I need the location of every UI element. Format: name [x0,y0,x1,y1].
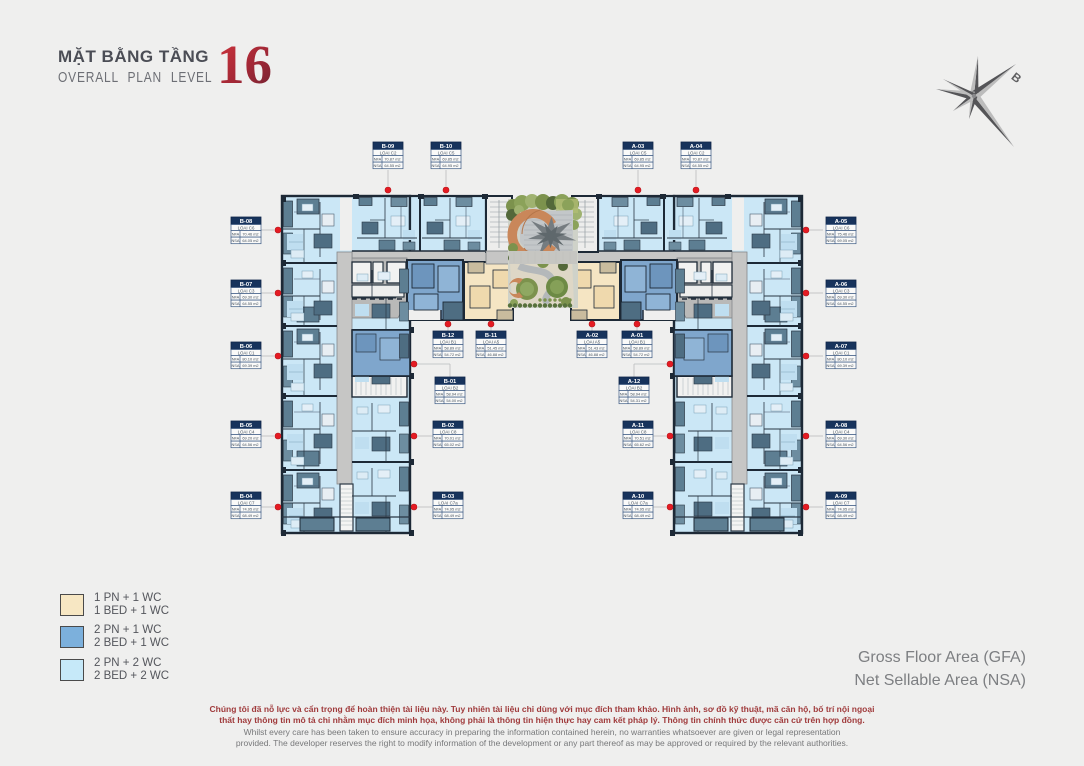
svg-text:NFA: NFA [682,157,690,162]
svg-text:B-12: B-12 [442,333,455,339]
svg-text:LOẠI C3: LOẠI C3 [833,288,850,293]
svg-text:NSA: NSA [623,352,631,357]
svg-text:NFA: NFA [827,436,835,441]
svg-text:LOẠI A5: LOẠI A5 [584,339,601,344]
svg-text:A-04: A-04 [690,144,703,150]
svg-text:LOẠI C2: LOẠI C2 [380,150,397,155]
svg-text:NSA: NSA [624,513,632,518]
svg-text:NFA: NFA [827,295,835,300]
svg-text:LOẠI C6: LOẠI C6 [833,225,850,230]
svg-text:64.55 m2: 64.55 m2 [837,301,853,306]
svg-text:NFA: NFA [232,295,240,300]
svg-text:68.49 m2: 68.49 m2 [634,513,650,518]
svg-text:NFA: NFA [620,392,628,397]
svg-text:LOẠI C2: LOẠI C2 [688,150,705,155]
svg-text:NFA: NFA [827,232,835,237]
svg-text:NSA: NSA [434,513,442,518]
svg-text:69.30 m2: 69.30 m2 [837,436,853,441]
svg-text:NSA: NSA [432,163,440,168]
svg-text:LOẠI C5: LOẠI C5 [438,150,455,155]
svg-text:NSA: NSA [827,301,835,306]
svg-text:LOẠI C8: LOẠI C8 [630,429,647,434]
svg-text:LOẠI C8: LOẠI C8 [440,429,457,434]
svg-text:54.72 m2: 54.72 m2 [444,352,460,357]
svg-text:51.45 m2: 51.45 m2 [487,346,503,351]
svg-text:LOẠI B1: LOẠI B1 [440,339,457,344]
svg-text:69.39 m2: 69.39 m2 [242,363,258,368]
svg-text:LOẠI C3: LOẠI C3 [238,288,255,293]
svg-text:NSA: NSA [232,513,240,518]
svg-text:74.95 m2: 74.95 m2 [837,507,853,512]
svg-text:NSA: NSA [477,352,485,357]
svg-text:54.31 m2: 54.31 m2 [630,398,646,403]
svg-text:NSA: NSA [232,363,240,368]
svg-text:46.88 m2: 46.88 m2 [487,352,503,357]
svg-text:NFA: NFA [434,346,442,351]
svg-text:64.56 m2: 64.56 m2 [242,442,258,447]
svg-text:NFA: NFA [624,507,632,512]
svg-text:A-07: A-07 [835,344,848,350]
svg-text:69.85 m2: 69.85 m2 [442,157,458,162]
svg-text:B-03: B-03 [442,494,455,500]
svg-text:A-05: A-05 [835,219,848,225]
svg-text:LOẠI C4: LOẠI C4 [238,429,255,434]
svg-text:NFA: NFA [436,392,444,397]
svg-text:B-11: B-11 [485,333,498,339]
svg-text:70.87 m2: 70.87 m2 [692,157,708,162]
svg-text:NSA: NSA [232,238,240,243]
svg-text:69.30 m2: 69.30 m2 [837,295,853,300]
svg-text:68.49 m2: 68.49 m2 [242,513,258,518]
svg-text:B-07: B-07 [240,282,253,288]
svg-text:NFA: NFA [434,436,442,441]
svg-text:A-02: A-02 [586,333,599,339]
svg-text:B-08: B-08 [240,219,253,225]
svg-text:NFA: NFA [232,232,240,237]
svg-text:58.89 m2: 58.89 m2 [444,346,460,351]
svg-text:NSA: NSA [682,163,690,168]
svg-text:NSA: NSA [827,442,835,447]
svg-text:LOẠI C7: LOẠI C7 [238,500,255,505]
svg-text:NFA: NFA [374,157,382,162]
svg-text:70.51 m2: 70.51 m2 [634,436,650,441]
svg-text:LOẠI C5: LOẠI C5 [630,150,647,155]
svg-text:LOẠI A5: LOẠI A5 [483,339,500,344]
svg-text:A-11: A-11 [632,423,645,429]
svg-text:A-12: A-12 [628,379,641,385]
svg-text:69.30 m2: 69.30 m2 [242,295,258,300]
svg-text:58.89 m2: 58.89 m2 [633,346,649,351]
svg-text:54.72 m2: 54.72 m2 [633,352,649,357]
svg-text:NFA: NFA [232,357,240,362]
svg-text:NFA: NFA [578,346,586,351]
svg-text:64.95 m2: 64.95 m2 [442,163,458,168]
svg-text:58.94 m2: 58.94 m2 [630,392,646,397]
svg-text:A-08: A-08 [835,423,848,429]
svg-text:LOẠI B2: LOẠI B2 [626,385,643,390]
svg-text:B-06: B-06 [240,344,253,350]
svg-text:LOẠI C7a: LOẠI C7a [438,500,458,505]
svg-text:NFA: NFA [477,346,485,351]
svg-text:NSA: NSA [827,363,835,368]
svg-text:51.43 m2: 51.43 m2 [588,346,604,351]
svg-text:B-05: B-05 [240,423,253,429]
svg-text:NSA: NSA [232,442,240,447]
svg-text:NFA: NFA [232,507,240,512]
svg-text:NFA: NFA [232,436,240,441]
svg-text:LOẠI B2: LOẠI B2 [442,385,459,390]
svg-text:NSA: NSA [434,352,442,357]
svg-text:64.55 m2: 64.55 m2 [384,163,400,168]
svg-text:NSA: NSA [434,442,442,447]
svg-text:NSA: NSA [374,163,382,168]
svg-text:80.10 m2: 80.10 m2 [837,357,853,362]
svg-text:LOẠI C7: LOẠI C7 [833,500,850,505]
svg-text:LOẠI C6: LOẠI C6 [238,225,255,230]
svg-text:A-03: A-03 [632,144,645,150]
svg-text:NSA: NSA [624,442,632,447]
svg-text:74.95 m2: 74.95 m2 [634,507,650,512]
svg-text:68.49 m2: 68.49 m2 [444,513,460,518]
svg-text:NFA: NFA [827,507,835,512]
svg-text:A-10: A-10 [632,494,645,500]
svg-text:NSA: NSA [827,238,835,243]
svg-text:LOẠI C7a: LOẠI C7a [628,500,648,505]
svg-text:LOẠI C4: LOẠI C4 [833,429,850,434]
svg-text:64.95 m2: 64.95 m2 [634,163,650,168]
svg-text:A-01: A-01 [631,333,644,339]
svg-text:69.05 m2: 69.05 m2 [837,238,853,243]
svg-text:NSA: NSA [436,398,444,403]
svg-text:74.95 m2: 74.95 m2 [444,507,460,512]
svg-text:80.10 m2: 80.10 m2 [242,357,258,362]
svg-text:NSA: NSA [232,301,240,306]
svg-text:70.46 m2: 70.46 m2 [242,232,258,237]
svg-text:NFA: NFA [434,507,442,512]
svg-text:65.62 m2: 65.62 m2 [634,442,650,447]
svg-text:LOẠI C1: LOẠI C1 [833,350,850,355]
svg-text:LOẠI B1: LOẠI B1 [629,339,646,344]
svg-text:75.46 m2: 75.46 m2 [837,232,853,237]
svg-text:NFA: NFA [623,346,631,351]
svg-text:NFA: NFA [827,357,835,362]
svg-text:69.39 m2: 69.39 m2 [837,363,853,368]
svg-text:74.95 m2: 74.95 m2 [242,507,258,512]
svg-text:64.56 m2: 64.56 m2 [837,442,853,447]
svg-text:64.55 m2: 64.55 m2 [692,163,708,168]
svg-text:46.88 m2: 46.88 m2 [588,352,604,357]
svg-text:70.87 m2: 70.87 m2 [384,157,400,162]
svg-text:65.02 m2: 65.02 m2 [444,442,460,447]
svg-text:A-06: A-06 [835,282,848,288]
svg-text:64.55 m2: 64.55 m2 [242,301,258,306]
svg-text:B-04: B-04 [240,494,253,500]
svg-text:B-09: B-09 [382,144,395,150]
svg-text:NSA: NSA [578,352,586,357]
svg-text:B-02: B-02 [442,423,455,429]
svg-text:NFA: NFA [624,436,632,441]
svg-text:58.94 m2: 58.94 m2 [446,392,462,397]
svg-text:NSA: NSA [620,398,628,403]
svg-text:NSA: NSA [624,163,632,168]
svg-text:69.85 m2: 69.85 m2 [634,157,650,162]
svg-text:70.01 m2: 70.01 m2 [444,436,460,441]
svg-text:68.49 m2: 68.49 m2 [837,513,853,518]
svg-text:LOẠI C1: LOẠI C1 [238,350,255,355]
svg-text:NFA: NFA [432,157,440,162]
svg-text:69.20 m2: 69.20 m2 [242,436,258,441]
svg-text:54.00 m2: 54.00 m2 [446,398,462,403]
svg-text:B-10: B-10 [440,144,453,150]
svg-text:NSA: NSA [827,513,835,518]
svg-text:B-01: B-01 [444,379,457,385]
svg-text:64.05 m2: 64.05 m2 [242,238,258,243]
svg-text:NFA: NFA [624,157,632,162]
svg-text:A-09: A-09 [835,494,848,500]
